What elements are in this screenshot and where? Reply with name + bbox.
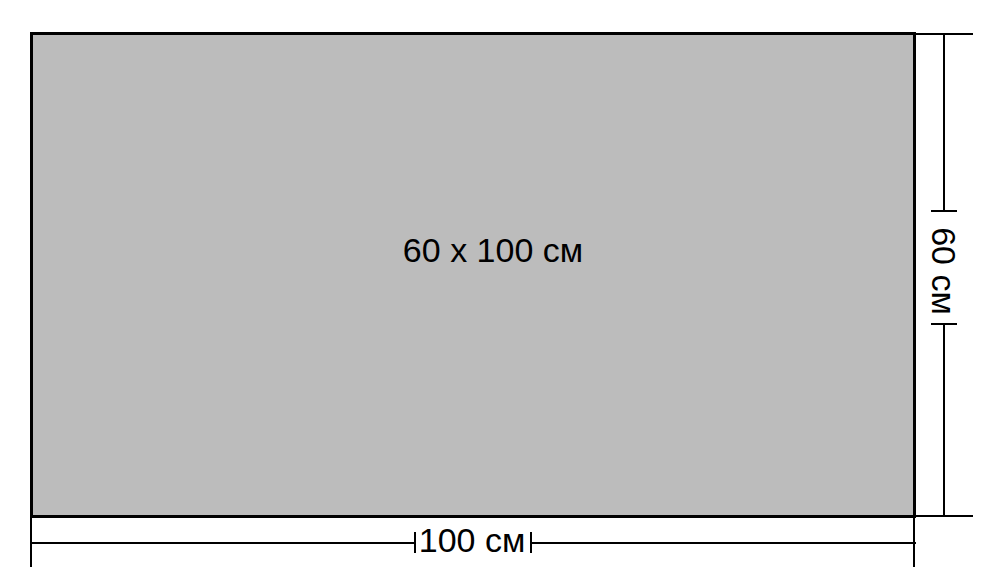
product-rectangle [30, 32, 916, 518]
height-dimension-label: 60 см [927, 227, 961, 315]
dimension-diagram: 60 x 100 см 60 см 100 см [0, 0, 1000, 582]
height-dimension-line-lower [943, 324, 945, 517]
height-dimension-tick-bottom [931, 323, 957, 325]
height-dimension-line-upper [943, 33, 945, 211]
width-dimension-line-right [531, 542, 916, 544]
height-dimension-tick-top [931, 210, 957, 212]
width-dimension-tick-right [530, 532, 532, 553]
width-dimension-label: 100 см [419, 523, 526, 557]
size-label: 60 x 100 см [403, 233, 583, 267]
width-dimension-line-left [30, 542, 415, 544]
width-dimension-tick-left [414, 532, 416, 553]
